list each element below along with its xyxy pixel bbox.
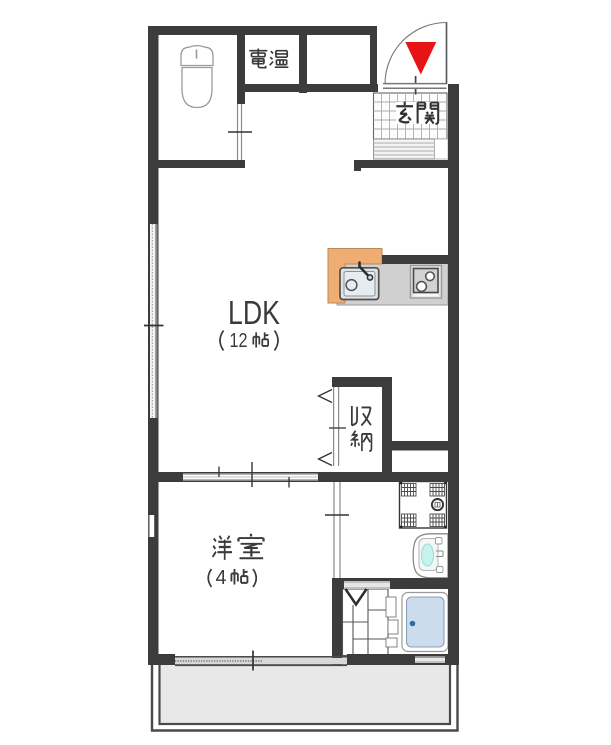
svg-text:12: 12 xyxy=(230,330,248,352)
svg-text:LDK: LDK xyxy=(228,294,280,331)
svg-text:4: 4 xyxy=(216,567,227,589)
